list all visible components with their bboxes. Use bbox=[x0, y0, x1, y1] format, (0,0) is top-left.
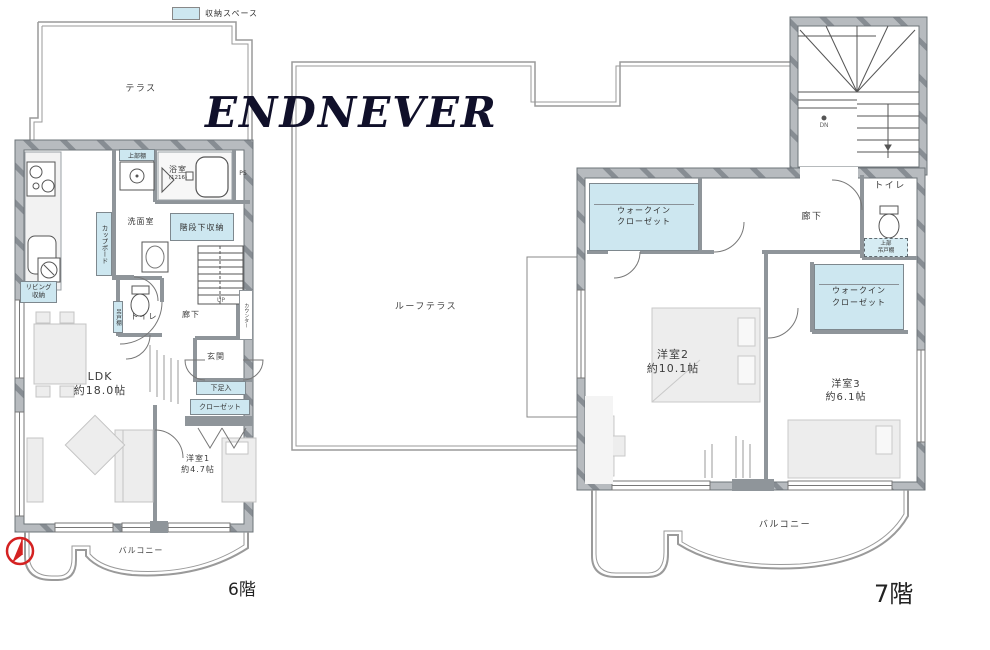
label-balcony-6f: バルコニー bbox=[110, 546, 172, 556]
storage-hanging-7f: 上部 吊戸棚 bbox=[864, 238, 908, 257]
label-counter: カウンター bbox=[239, 290, 253, 340]
storage-wic2: ウォークイン クローゼット bbox=[814, 264, 904, 330]
floor7-toilet bbox=[879, 206, 899, 238]
label-terrace: テラス bbox=[118, 84, 164, 96]
floor6-washbasin bbox=[142, 242, 168, 272]
storage-hanging-7f-line2: 吊戸棚 bbox=[878, 248, 895, 254]
label-room2-name: 洋室2 bbox=[630, 348, 716, 362]
label-entrance: 玄関 bbox=[198, 352, 234, 362]
storage-living-line2: 収納 bbox=[32, 292, 45, 300]
watermark-text: ENDNEVER bbox=[205, 88, 498, 137]
label-room3: 洋室3 約6.1帖 bbox=[808, 378, 884, 404]
storage-cupboard-label: カップボード bbox=[99, 225, 109, 264]
floor7-stairs bbox=[798, 26, 919, 158]
floor6-washer bbox=[120, 162, 154, 190]
wic1-line2: クローゼット bbox=[590, 216, 698, 227]
label-room2: 洋室2 約10.1帖 bbox=[630, 348, 716, 377]
label-bath-size: (1216) bbox=[158, 175, 198, 181]
label-ldk-name: LDK bbox=[60, 370, 140, 384]
label-balcony-7f: バルコニー bbox=[752, 520, 818, 532]
label-room1-name: 洋室1 bbox=[168, 453, 228, 464]
label-toilet-7f: トイレ bbox=[868, 181, 912, 193]
storage-upper-shelf: 上部棚 bbox=[119, 149, 155, 161]
label-toilet-6f: トイレ bbox=[124, 312, 164, 322]
label-floor6: 6階 bbox=[228, 575, 256, 600]
label-ps: PS bbox=[236, 170, 250, 178]
storage-closet: クローゼット bbox=[190, 399, 250, 415]
floor7-balcony bbox=[592, 490, 908, 577]
legend-storage-swatch bbox=[172, 7, 200, 20]
label-dn: DN bbox=[816, 122, 832, 130]
storage-shoe-box: 下足入 bbox=[196, 381, 246, 395]
storage-hanging-6f-label: 吊戸棚 bbox=[114, 309, 122, 326]
storage-hanging-6f: 吊戸棚 bbox=[113, 301, 123, 333]
floor6-stairs bbox=[198, 246, 243, 304]
label-room3-size: 約6.1帖 bbox=[808, 391, 884, 404]
wic1-label: ウォークイン クローゼット bbox=[590, 205, 698, 227]
storage-living: リビング 収納 bbox=[20, 281, 57, 303]
label-room1: 洋室1 約4.7帖 bbox=[168, 453, 228, 475]
label-ldk: LDK 約18.0帖 bbox=[60, 370, 140, 399]
wic2-line2: クローゼット bbox=[815, 297, 903, 308]
storage-upper-shelf-label: 上部棚 bbox=[128, 151, 146, 160]
label-ldk-size: 約18.0帖 bbox=[60, 384, 140, 398]
label-hallway-6f: 廊下 bbox=[176, 310, 206, 320]
floor6-kitchen bbox=[25, 152, 61, 290]
label-room1-size: 約4.7帖 bbox=[168, 464, 228, 475]
storage-closet-label: クローゼット bbox=[199, 402, 241, 412]
floorplan-canvas: 収納スペース ENDNEVER 上部棚 カップボード 階段下収納 リビング 収納… bbox=[0, 0, 990, 650]
wic2-label: ウォークイン クローゼット bbox=[815, 285, 903, 307]
storage-shoe-box-label: 下足入 bbox=[211, 383, 232, 393]
label-counter-text: カウンター bbox=[243, 303, 250, 328]
closet-back-wall bbox=[185, 416, 253, 426]
label-floor7: 7階 bbox=[874, 574, 913, 609]
label-hallway-7f: 廊下 bbox=[796, 212, 828, 224]
wic1-line1: ウォークイン bbox=[590, 205, 698, 216]
label-roof-terrace: ルーフテラス bbox=[390, 302, 462, 314]
legend: 収納スペース bbox=[172, 7, 258, 20]
storage-wic1: ウォークイン クローゼット bbox=[589, 183, 699, 251]
legend-label: 収納スペース bbox=[205, 8, 258, 19]
label-bath: 浴室 (1216) bbox=[158, 166, 198, 181]
wic2-line1: ウォークイン bbox=[815, 285, 903, 296]
label-room2-size: 約10.1帖 bbox=[630, 362, 716, 376]
label-up: UP bbox=[214, 297, 228, 305]
storage-under-stair: 階段下収納 bbox=[170, 213, 234, 241]
label-washroom: 洗面室 bbox=[118, 217, 164, 227]
storage-cupboard: カップボード bbox=[96, 212, 112, 276]
label-bath-name: 浴室 bbox=[158, 166, 198, 175]
storage-under-stair-label: 階段下収納 bbox=[180, 222, 225, 233]
label-room3-name: 洋室3 bbox=[808, 378, 884, 391]
